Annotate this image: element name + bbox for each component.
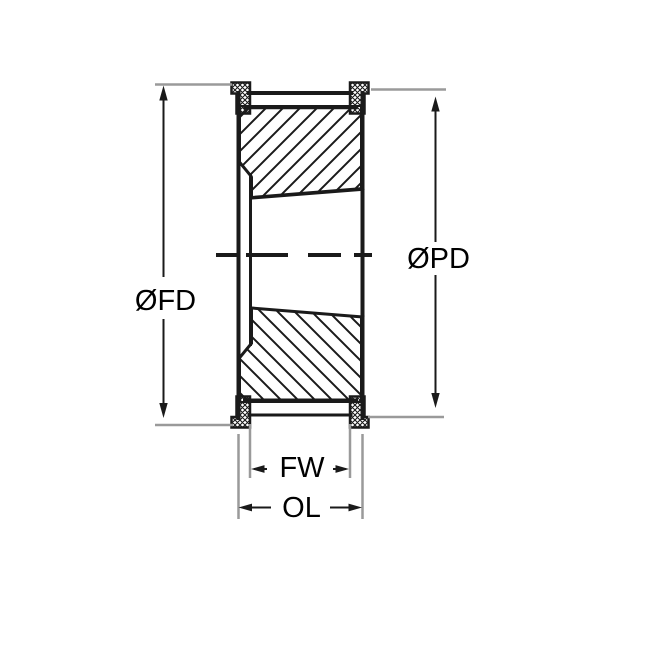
pd-arrow-up xyxy=(431,97,439,112)
fw-arrow-right xyxy=(336,465,350,473)
flange-top-right xyxy=(350,83,369,114)
fw-label: FW xyxy=(279,452,325,484)
lower-body-hatch xyxy=(240,308,361,402)
pd-label: ØPD xyxy=(407,243,470,275)
upper-body-hatch xyxy=(240,106,361,199)
ol-arrow-right xyxy=(349,504,363,512)
dim-pitch-diameter: ØPD xyxy=(368,90,470,418)
flange-top-left xyxy=(232,83,251,114)
ol-arrow-left xyxy=(239,504,253,512)
pulley-section-drawing: ØFD ØPD FW OL xyxy=(0,0,670,670)
fw-arrow-left xyxy=(251,465,265,473)
fd-arrow-up xyxy=(159,86,167,101)
fd-label: ØFD xyxy=(135,285,196,317)
dim-face-width: FW xyxy=(250,424,350,484)
fd-arrow-down xyxy=(159,403,167,418)
flange-bottom-right xyxy=(350,397,369,428)
technical-drawing-canvas: ØFD ØPD FW OL xyxy=(0,0,670,670)
pulley-body xyxy=(216,83,372,428)
pd-arrow-down xyxy=(431,393,439,408)
flange-bottom-left xyxy=(232,397,251,428)
ol-label: OL xyxy=(282,492,321,524)
